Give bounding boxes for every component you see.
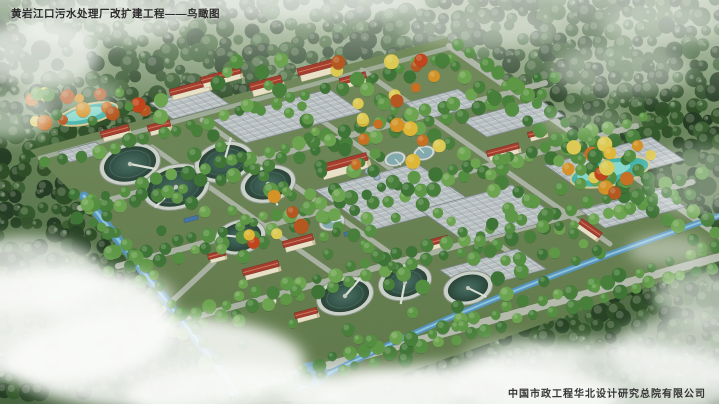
rendering-stage: 黄岩江口污水处理厂改扩建工程——鸟瞰图 中国市政工程华北设计研究总院有限公司 (0, 0, 719, 404)
haze-overlay (0, 0, 719, 404)
project-title: 黄岩江口污水处理厂改扩建工程——鸟瞰图 (11, 6, 220, 21)
aerial-rendering (0, 0, 719, 404)
design-institute-credit: 中国市政工程华北设计研究总院有限公司 (508, 385, 706, 400)
